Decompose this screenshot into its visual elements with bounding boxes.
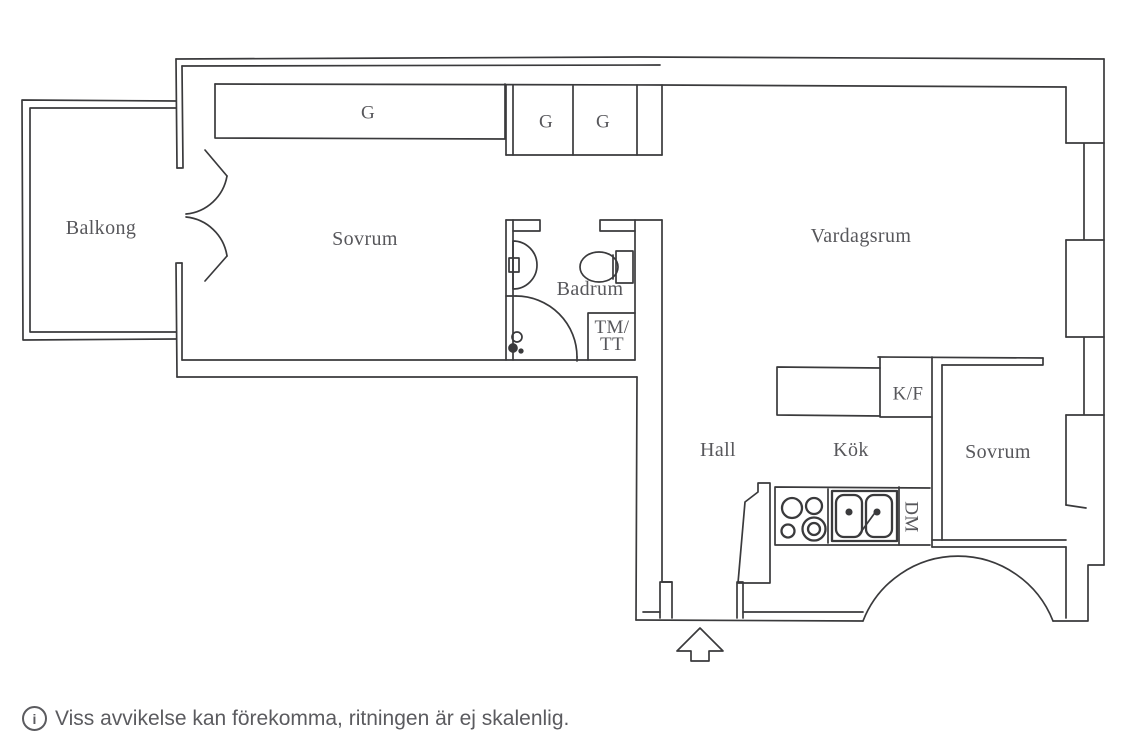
bay-arc bbox=[863, 556, 1053, 621]
room-label-kok: Kök bbox=[833, 440, 869, 460]
floor-plan-page: Balkong Sovrum Badrum Vardagsrum Hall Kö… bbox=[0, 0, 1130, 753]
stove-icon bbox=[782, 498, 826, 541]
closets-box bbox=[506, 85, 662, 155]
washer-dryer-label: TM/ TT bbox=[595, 319, 630, 353]
bathroom-walls bbox=[506, 220, 672, 582]
closet1-label: G bbox=[539, 113, 553, 132]
disclaimer: i Viss avvikelse kan förekomma, ritninge… bbox=[22, 706, 569, 731]
balcony-door bbox=[186, 150, 227, 281]
room-label-hall: Hall bbox=[700, 440, 736, 460]
room-label-sovrum1: Sovrum bbox=[332, 229, 398, 249]
room-label-badrum: Badrum bbox=[557, 279, 624, 299]
closet2-label: G bbox=[596, 113, 610, 132]
disclaimer-text: Viss avvikelse kan förekomma, ritningen … bbox=[55, 707, 569, 731]
washer-dryer-label-line2: TT bbox=[595, 336, 630, 353]
fridge-freezer-label: K/F bbox=[893, 385, 924, 404]
kitchen-sink-icon bbox=[832, 491, 897, 541]
info-icon: i bbox=[22, 706, 47, 731]
room-label-balkong: Balkong bbox=[66, 218, 137, 238]
room-label-sovrum2: Sovrum bbox=[965, 442, 1031, 462]
room-label-vardagsrum: Vardagsrum bbox=[811, 226, 912, 246]
shower-icon bbox=[506, 296, 577, 361]
wardrobe-label: G bbox=[361, 104, 375, 123]
bathroom-sink-icon bbox=[509, 241, 537, 289]
window-livingroom bbox=[1066, 143, 1104, 240]
floor-plan-drawing bbox=[0, 0, 1130, 753]
kitchen-hall-partition bbox=[738, 483, 770, 583]
entrance-arrow-icon bbox=[677, 628, 723, 661]
window-bedroom2 bbox=[1066, 337, 1104, 415]
outer-walls bbox=[176, 57, 1104, 621]
dishwasher-label: DM bbox=[902, 501, 921, 532]
